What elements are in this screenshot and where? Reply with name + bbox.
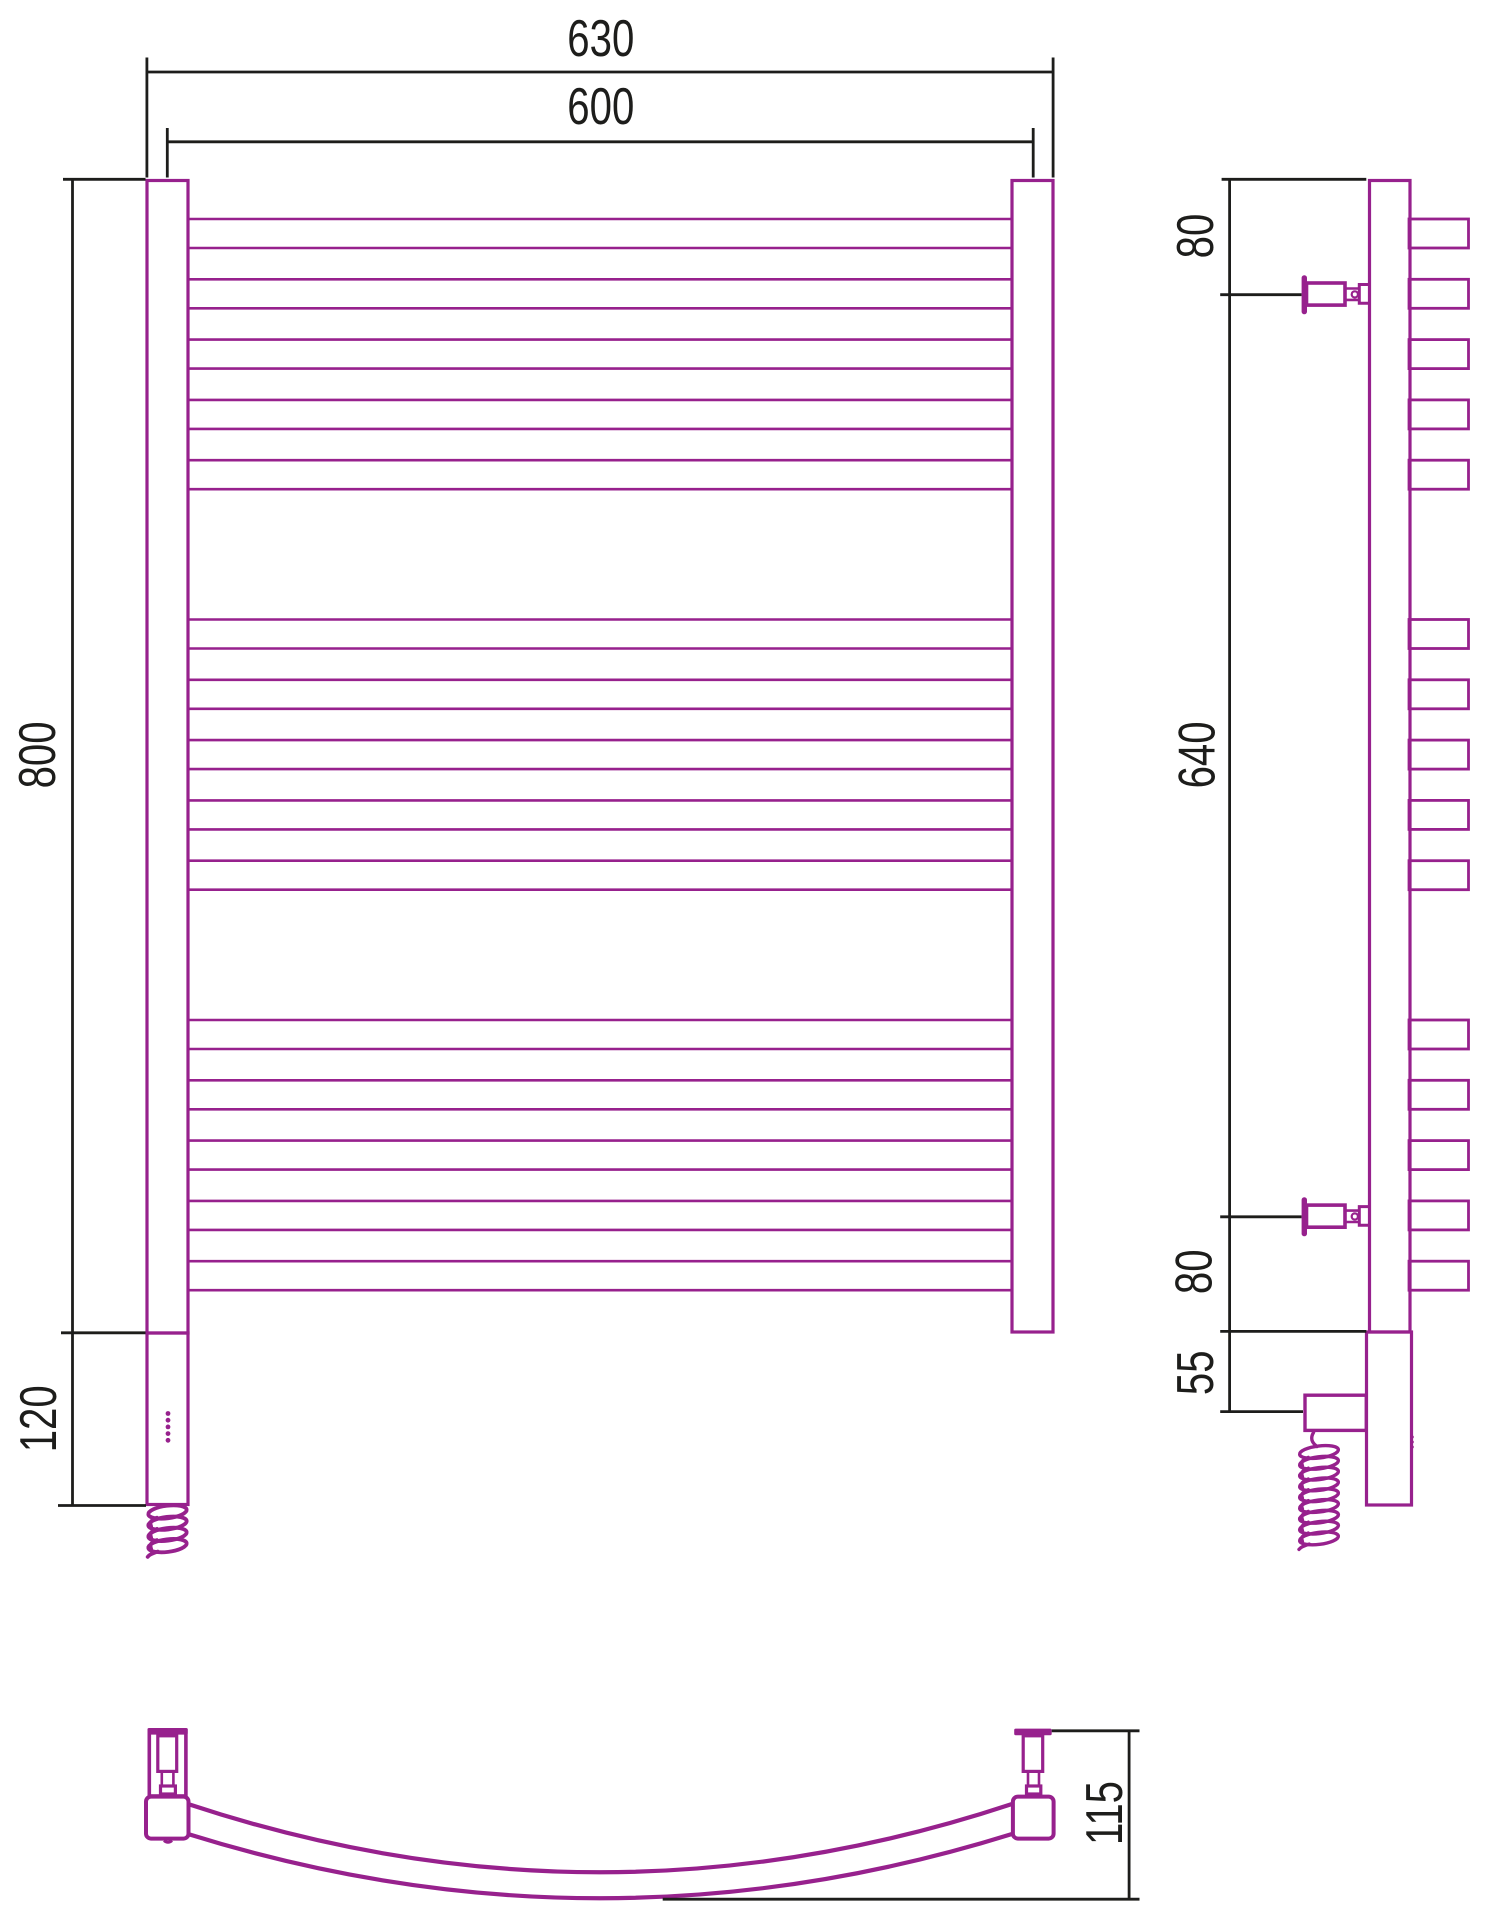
svg-text:80: 80 xyxy=(1165,1249,1223,1294)
svg-text:120: 120 xyxy=(9,1385,67,1452)
svg-text:55: 55 xyxy=(1166,1350,1224,1395)
svg-text:630: 630 xyxy=(567,9,634,67)
svg-text:800: 800 xyxy=(8,721,66,788)
svg-text:600: 600 xyxy=(567,77,634,135)
svg-text:115: 115 xyxy=(1075,1781,1133,1845)
svg-text:640: 640 xyxy=(1167,721,1225,788)
svg-text:80: 80 xyxy=(1166,214,1224,259)
